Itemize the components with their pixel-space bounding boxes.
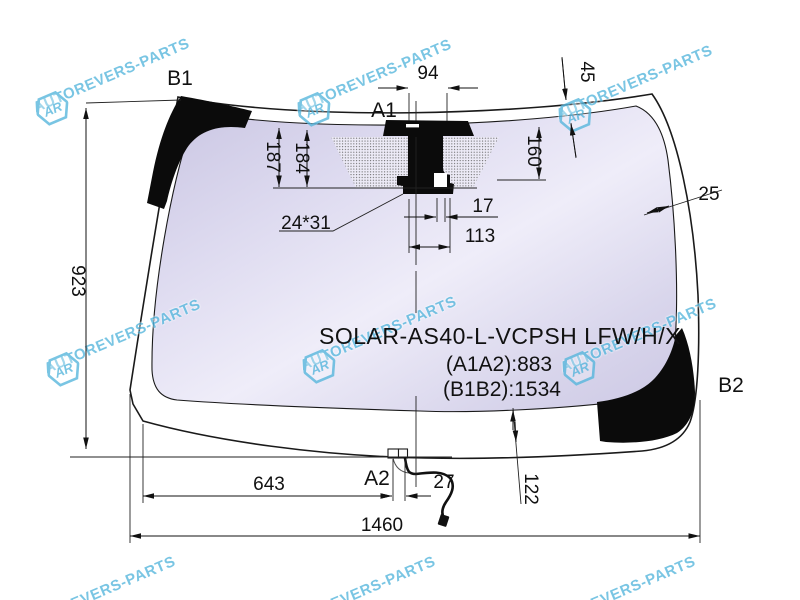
glass-layer <box>0 0 800 600</box>
windshield-diagram: AR AUTOREVERS-PARTS AR AUTOREVERS-PARTS … <box>0 0 800 600</box>
sensor-frit-area <box>331 137 499 188</box>
